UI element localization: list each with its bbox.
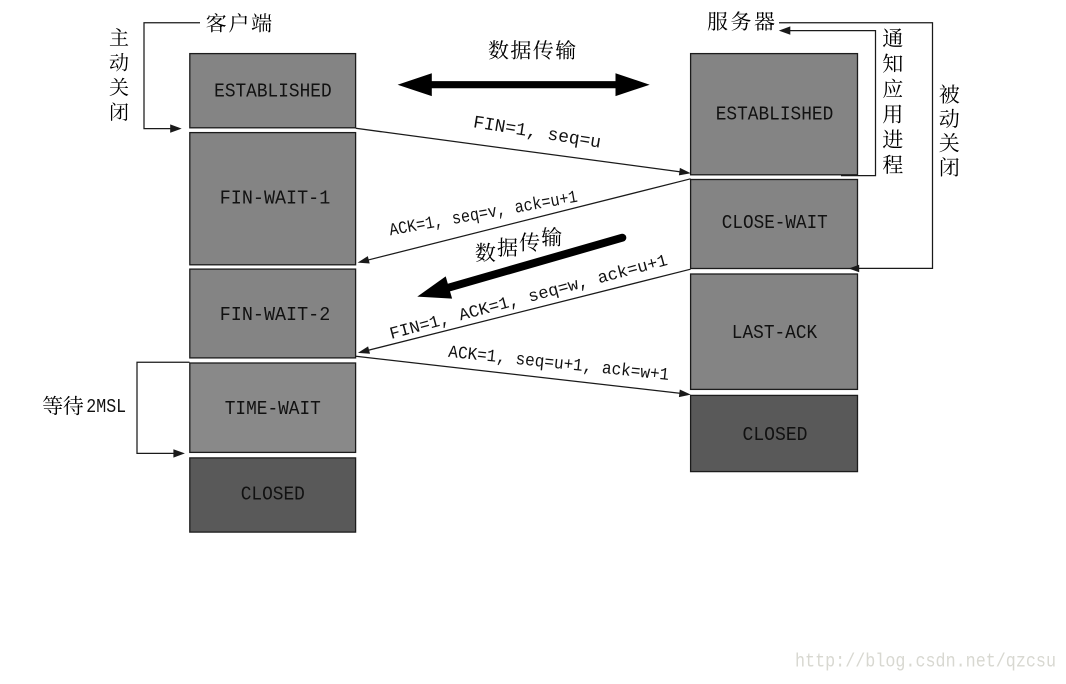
- svg-text:CLOSED: CLOSED: [743, 424, 808, 446]
- svg-text:http://blog.csdn.net/qzcsu: http://blog.csdn.net/qzcsu: [795, 651, 1056, 673]
- svg-text:2MSL: 2MSL: [86, 396, 126, 418]
- svg-text:LAST-ACK: LAST-ACK: [732, 322, 818, 344]
- svg-text:CLOSE-WAIT: CLOSE-WAIT: [722, 212, 828, 234]
- svg-text:CLOSED: CLOSED: [241, 484, 305, 506]
- svg-text:FIN-WAIT-1: FIN-WAIT-1: [220, 187, 331, 209]
- svg-text:TIME-WAIT: TIME-WAIT: [225, 398, 321, 420]
- svg-text:ESTABLISHED: ESTABLISHED: [716, 104, 834, 126]
- svg-text:ESTABLISHED: ESTABLISHED: [214, 80, 332, 102]
- svg-text:FIN-WAIT-2: FIN-WAIT-2: [220, 304, 331, 326]
